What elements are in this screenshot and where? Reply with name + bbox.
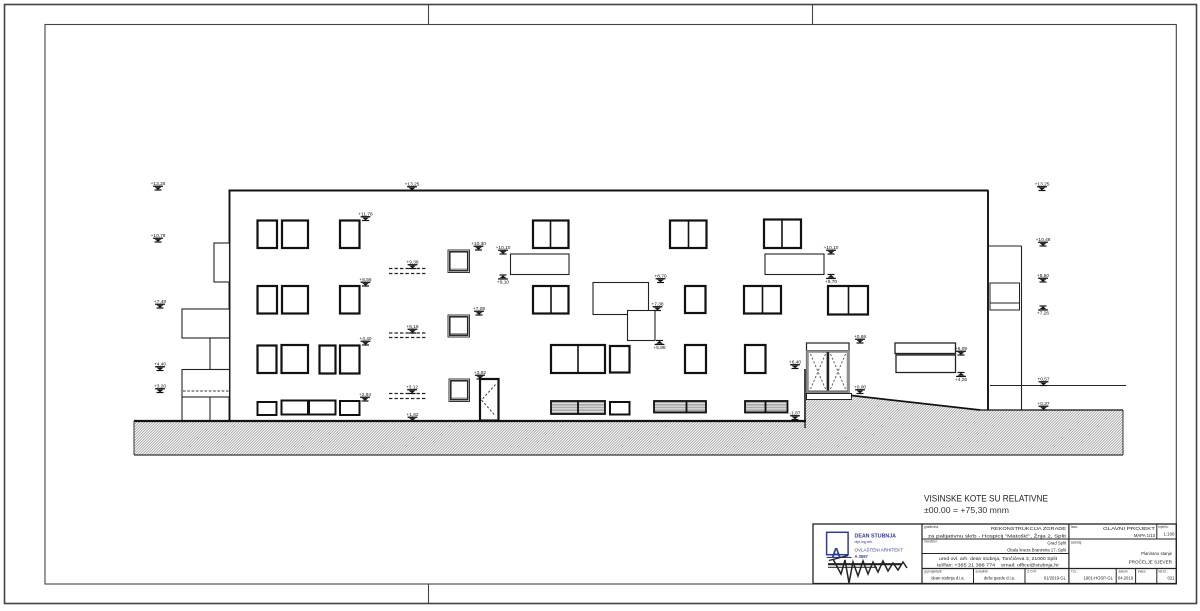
svg-text:Planirano stanje: Planirano stanje <box>1141 551 1172 556</box>
svg-text:+10,10: +10,10 <box>824 245 839 251</box>
svg-text:dipl.ing.arh.: dipl.ing.arh. <box>855 540 874 544</box>
svg-text:+6,40: +6,40 <box>789 360 801 366</box>
svg-text:+6,16: +6,16 <box>406 324 418 330</box>
svg-text:sadržaj:: sadržaj: <box>1071 540 1082 544</box>
svg-text:+8,70: +8,70 <box>654 274 666 280</box>
svg-text:gl.projektant:: gl.projektant: <box>924 569 942 573</box>
svg-text:REKONSTRUKCIJA ZGRADE: REKONSTRUKCIJA ZGRADE <box>991 526 1066 531</box>
svg-text:+10,30: +10,30 <box>471 241 486 247</box>
svg-text:+3,20: +3,20 <box>154 384 166 390</box>
svg-text:investitor:: investitor: <box>924 539 938 543</box>
svg-text:+10,78: +10,78 <box>151 233 166 239</box>
svg-text:za palijativnu skrb - Hospicij: za palijativnu skrb - Hospicij "Matošić"… <box>928 534 1067 539</box>
svg-text:+13,25: +13,25 <box>1035 182 1050 188</box>
svg-text:list br.:: list br.: <box>1159 569 1168 573</box>
svg-text:+9,10: +9,10 <box>497 279 509 285</box>
svg-text:+1,82: +1,82 <box>406 412 418 418</box>
svg-text:tel/fax: +385 21 388 774 em: tel/fax: +385 21 388 774 email: office@s… <box>937 562 1060 567</box>
svg-text:+0,68: +0,68 <box>854 334 866 340</box>
svg-text:+2,84: +2,84 <box>359 392 371 398</box>
svg-text:ured ovl. arh. dean stubnja, T: ured ovl. arh. dean stubnja, Tončićeva 3… <box>939 556 1058 561</box>
svg-text:+0,57: +0,57 <box>1037 377 1049 383</box>
svg-text:+11,78: +11,78 <box>358 212 373 218</box>
svg-text:+8,56: +8,56 <box>359 277 371 283</box>
svg-text:Z.O.P.:: Z.O.P.: <box>1027 569 1037 573</box>
svg-text:1:100: 1:100 <box>1164 532 1176 537</box>
svg-text:+13,25: +13,25 <box>405 182 420 188</box>
svg-text:+13,25: +13,25 <box>151 181 166 187</box>
svg-text:-1,87: -1,87 <box>790 411 801 417</box>
svg-text:+9,70: +9,70 <box>825 279 837 285</box>
svg-text:Grad Split: Grad Split <box>1047 541 1066 546</box>
svg-text:+7,48: +7,48 <box>154 299 166 305</box>
svg-text:+0,37: +0,37 <box>1037 401 1049 407</box>
svg-text:+9,38: +9,38 <box>406 260 418 266</box>
svg-text:dean stubnja d.i.a.: dean stubnja d.i.a. <box>931 576 964 581</box>
svg-text:T.D.:: T.D.: <box>1071 569 1078 573</box>
svg-text:GLAVNI PROJEKT: GLAVNI PROJEKT <box>1103 526 1155 531</box>
svg-text:+5,88: +5,88 <box>653 345 665 351</box>
svg-text:+10,10: +10,10 <box>496 245 511 251</box>
svg-text:+0,00: +0,00 <box>854 385 866 391</box>
svg-text:+4,40: +4,40 <box>359 336 371 342</box>
svg-text:Obala kneza Branimira 17, Spli: Obala kneza Branimira 17, Split <box>1007 547 1067 552</box>
svg-text:građevina:: građevina: <box>924 525 939 529</box>
svg-text:+4,26: +4,26 <box>955 377 967 383</box>
svg-text:04.2019: 04.2019 <box>1118 575 1134 580</box>
svg-text:+6,09: +6,09 <box>955 346 967 352</box>
svg-text:VISINSKE KOTE SU RELATIVNE: VISINSKE KOTE SU RELATIVNE <box>924 494 1048 504</box>
svg-text:deše gazde d.i.a.: deše gazde d.i.a. <box>984 576 1015 581</box>
svg-text:+3,92: +3,92 <box>474 370 486 376</box>
svg-text:1901-HOSP-GL: 1901-HOSP-GL <box>1083 576 1113 581</box>
svg-text:+8,50: +8,50 <box>1037 273 1049 279</box>
svg-text:+7,08: +7,08 <box>473 306 485 312</box>
svg-text:index:: index: <box>1138 569 1147 573</box>
svg-text:A 3557: A 3557 <box>855 554 869 559</box>
svg-text:021: 021 <box>1168 576 1176 581</box>
svg-text:datum:: datum: <box>1119 569 1129 573</box>
svg-text:±00.00 = +75,30 mnm: ±00.00 = +75,30 mnm <box>924 506 1009 515</box>
svg-text:+10,48: +10,48 <box>1036 237 1051 243</box>
svg-text:+4,40: +4,40 <box>154 362 166 368</box>
svg-text:MAPA 1/13: MAPA 1/13 <box>1134 533 1156 538</box>
svg-text:01/2019-GL: 01/2019-GL <box>1044 576 1067 581</box>
svg-text:+7,38: +7,38 <box>651 302 663 308</box>
svg-text:DEAN STUBNJA: DEAN STUBNJA <box>855 534 897 540</box>
svg-text:mjerilo:: mjerilo: <box>1158 525 1168 529</box>
svg-text:OVLAŠTENI ARHITEKT: OVLAŠTENI ARHITEKT <box>855 547 904 553</box>
svg-text:PROČELJE SJEVER: PROČELJE SJEVER <box>1129 558 1173 564</box>
svg-text:suradnik:: suradnik: <box>976 569 989 573</box>
svg-text:+3,12: +3,12 <box>406 385 418 391</box>
svg-text:faza:: faza: <box>1071 525 1078 529</box>
svg-text:+7,26: +7,26 <box>1037 310 1049 316</box>
